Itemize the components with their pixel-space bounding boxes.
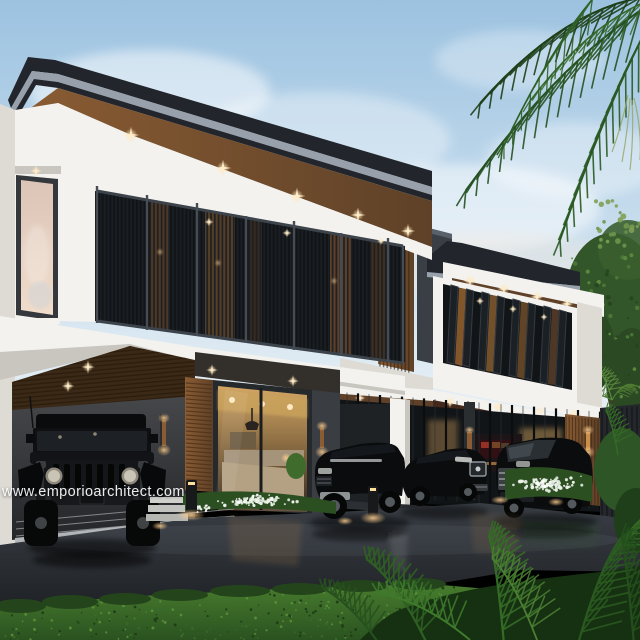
architectural-render-photo: www.emporioarchitect.com bbox=[0, 0, 640, 640]
render-canvas bbox=[0, 0, 640, 640]
left-ground-right bbox=[185, 352, 340, 516]
range-rover-car bbox=[310, 443, 410, 531]
wood-panel bbox=[185, 377, 213, 492]
watermark-text: www.emporioarchitect.com bbox=[2, 484, 185, 500]
tall-window bbox=[14, 165, 61, 324]
